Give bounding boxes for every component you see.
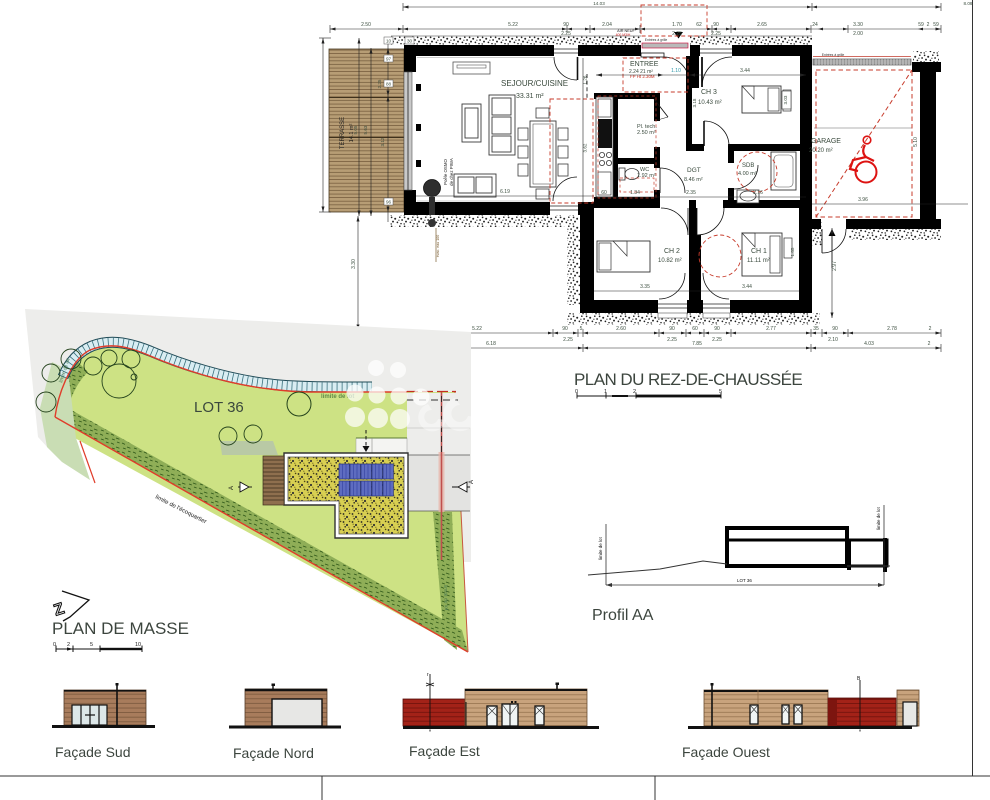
svg-text:1.34: 1.34 (630, 190, 640, 196)
svg-text:2.78: 2.78 (887, 326, 897, 332)
svg-text:2.25: 2.25 (712, 337, 722, 343)
svg-text:400 M3/H: 400 M3/H (616, 33, 631, 37)
svg-text:5: 5 (90, 642, 93, 648)
svg-text:60: 60 (692, 326, 698, 332)
svg-text:A: A (469, 480, 475, 484)
svg-text:90: 90 (669, 326, 675, 332)
svg-text:1.10: 1.10 (671, 68, 681, 74)
svg-text:6.18: 6.18 (486, 341, 496, 347)
svg-text:Façade Sud: Façade Sud (55, 744, 131, 760)
svg-text:3.30: 3.30 (351, 259, 357, 269)
svg-text:limite de lot: limite de lot (442, 585, 449, 611)
svg-text:2.00: 2.00 (853, 31, 863, 37)
svg-text:limite de lot: limite de lot (876, 506, 881, 530)
svg-text:2.35: 2.35 (686, 190, 696, 196)
svg-text:Façade Ouest: Façade Ouest (682, 744, 770, 760)
svg-text:20.20 m²: 20.20 m² (809, 148, 833, 154)
svg-text:CH 1: CH 1 (751, 248, 767, 255)
svg-text:2.60: 2.60 (616, 326, 626, 332)
svg-text:2.77: 2.77 (766, 326, 776, 332)
svg-text:10: 10 (386, 39, 392, 44)
svg-text:1.70: 1.70 (672, 22, 682, 28)
svg-text:2: 2 (928, 341, 931, 347)
svg-text:3.03: 3.03 (783, 95, 788, 104)
svg-text:33.31 m²: 33.31 m² (516, 93, 544, 100)
svg-text:Entrées à grille: Entrées à grille (822, 53, 845, 57)
svg-text:5: 5 (719, 389, 722, 395)
svg-text:30: 30 (407, 39, 413, 44)
svg-text:2.97: 2.97 (832, 261, 838, 271)
svg-text:1.85: 1.85 (790, 247, 795, 256)
svg-text:5.22: 5.22 (472, 326, 482, 332)
svg-text:5.22: 5.22 (508, 22, 518, 28)
svg-text:2: 2 (927, 22, 930, 28)
svg-text:2.25: 2.25 (563, 337, 573, 343)
svg-text:Poêle OSMO: Poêle OSMO (443, 158, 448, 184)
svg-text:1.92 m²: 1.92 m² (637, 173, 656, 179)
svg-text:Façade Nord: Façade Nord (233, 745, 314, 761)
svg-text:4.03: 4.03 (864, 341, 874, 347)
svg-text:3.35: 3.35 (640, 284, 650, 290)
svg-text:CH 2: CH 2 (664, 248, 680, 255)
svg-text:96: 96 (386, 200, 392, 205)
svg-text:10: 10 (135, 642, 141, 648)
svg-text:2.50 m²: 2.50 m² (637, 130, 656, 136)
svg-text:5.10: 5.10 (913, 137, 919, 147)
svg-text:CH 3: CH 3 (701, 89, 717, 96)
svg-text:2.25: 2.25 (561, 31, 571, 37)
svg-text:SEJOUR/CUISINE: SEJOUR/CUISINE (501, 79, 568, 88)
svg-text:2.50: 2.50 (361, 22, 371, 28)
svg-text:limite de lot: limite de lot (598, 536, 603, 560)
svg-text:59: 59 (933, 22, 939, 28)
svg-text:8.46 m²: 8.46 m² (684, 177, 703, 183)
svg-text:2: 2 (929, 326, 932, 332)
svg-text:90: 90 (562, 326, 568, 332)
svg-text:DGT: DGT (687, 167, 701, 174)
svg-text:3.18: 3.18 (692, 98, 697, 107)
svg-text:3.44: 3.44 (742, 284, 752, 290)
svg-text:3.96: 3.96 (858, 197, 868, 203)
svg-text:0: 0 (575, 389, 578, 395)
svg-text:TERRASSE: TERRASSE (340, 117, 346, 149)
svg-text:35: 35 (813, 326, 819, 332)
svg-text:3.62: 3.62 (583, 143, 588, 152)
svg-text:2.25: 2.25 (667, 337, 677, 343)
svg-text:2.65: 2.65 (757, 22, 767, 28)
svg-text:PLAN DE MASSE: PLAN DE MASSE (52, 619, 189, 638)
svg-text:4.00 m²: 4.00 m² (738, 171, 757, 177)
svg-text:5.63: 5.63 (363, 125, 368, 134)
svg-text:88: 88 (386, 82, 392, 87)
svg-text:2: 2 (67, 642, 70, 648)
svg-text:2.25: 2.25 (377, 79, 382, 88)
svg-text:3.44: 3.44 (740, 68, 750, 74)
svg-text:60: 60 (601, 190, 607, 196)
svg-text:2.16: 2.16 (753, 190, 763, 196)
svg-text:7.85: 7.85 (692, 341, 702, 347)
svg-text:10.43 m²: 10.43 m² (698, 100, 722, 106)
svg-text:Profil AA: Profil AA (592, 607, 654, 624)
svg-text:SDB: SDB (742, 163, 754, 169)
svg-text:Façade Est: Façade Est (409, 743, 480, 759)
svg-text:A: A (229, 486, 235, 490)
svg-text:5.05: 5.05 (353, 125, 358, 134)
svg-text:90: 90 (713, 22, 719, 28)
svg-text:Entrées à grille: Entrées à grille (645, 38, 668, 42)
svg-text:10.82 m²: 10.82 m² (658, 258, 682, 264)
svg-text:GARAGE: GARAGE (811, 138, 841, 145)
svg-text:90: 90 (714, 326, 720, 332)
svg-text:1: 1 (604, 389, 607, 395)
svg-text:2.25: 2.25 (711, 31, 721, 37)
svg-text:97: 97 (386, 57, 392, 62)
svg-text:62: 62 (696, 22, 702, 28)
svg-text:ENTREE: ENTREE (630, 61, 659, 68)
svg-text:6.19: 6.19 (500, 189, 510, 195)
svg-text:59: 59 (918, 22, 924, 28)
svg-text:14.03: 14.03 (593, 1, 605, 6)
svg-text:90: 90 (563, 22, 569, 28)
svg-text:évac. eau 100: évac. eau 100 (436, 235, 440, 258)
svg-text:2.10: 2.10 (828, 337, 838, 343)
svg-text:8.08: 8.08 (964, 1, 973, 6)
svg-text:90: 90 (832, 326, 838, 332)
svg-text:3.12: 3.12 (380, 137, 385, 146)
svg-text:PLAN DU REZ-DE-CHAUSSÉE: PLAN DU REZ-DE-CHAUSSÉE (574, 370, 802, 389)
svg-text:de chez PIWA: de chez PIWA (449, 158, 454, 186)
svg-text:LOT 36: LOT 36 (737, 578, 752, 583)
svg-text:3.30: 3.30 (853, 22, 863, 28)
svg-text:24: 24 (812, 22, 818, 28)
svg-text:2.04: 2.04 (602, 22, 612, 28)
svg-text:11.11 m²: 11.11 m² (747, 258, 770, 264)
svg-text:5: 5 (580, 326, 583, 332)
svg-text:LOT 36: LOT 36 (194, 399, 244, 416)
svg-text:1.26: 1.26 (583, 75, 588, 84)
